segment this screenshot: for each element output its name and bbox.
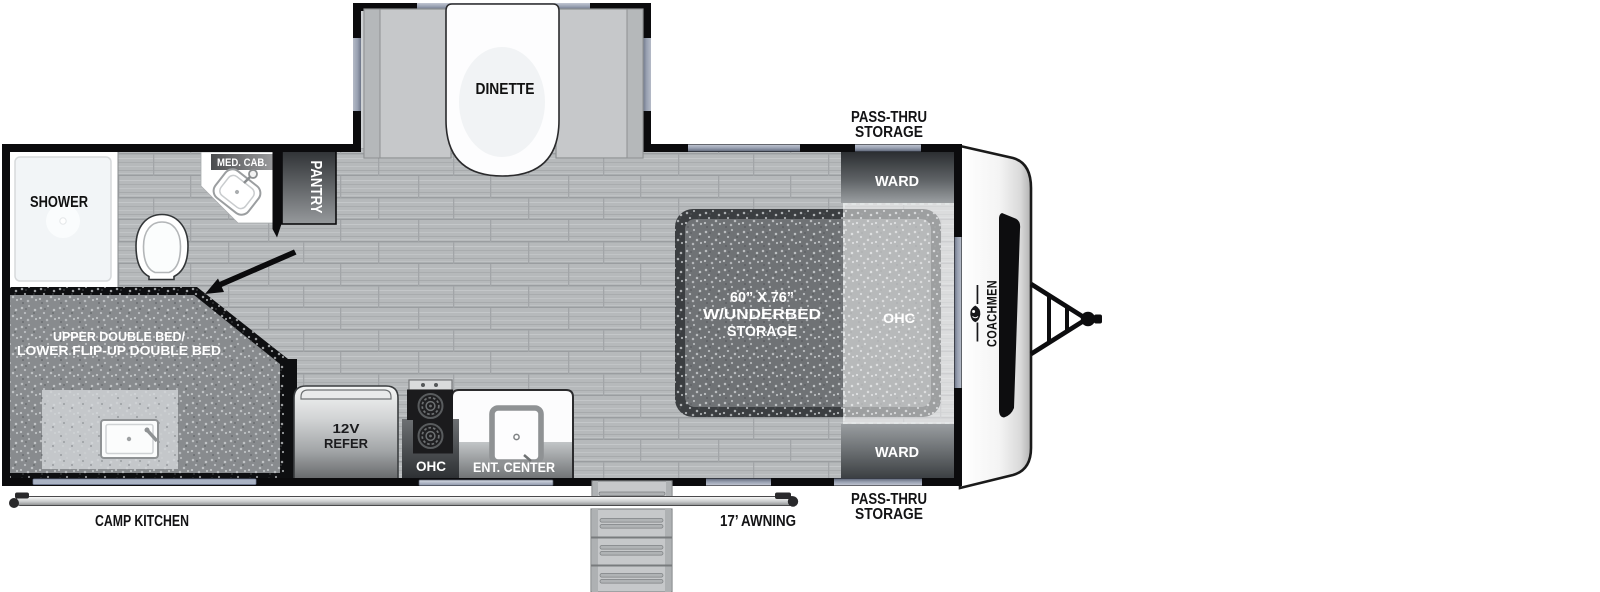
svg-text:OHC: OHC (883, 310, 915, 326)
svg-text:OHC: OHC (416, 459, 446, 474)
svg-text:DINETTE: DINETTE (476, 81, 535, 98)
svg-text:STORAGE: STORAGE (727, 323, 797, 340)
svg-text:PANTRY: PANTRY (307, 161, 324, 214)
svg-text:WARD: WARD (875, 444, 919, 461)
svg-text:STORAGE: STORAGE (855, 506, 923, 523)
svg-text:ENT. CENTER: ENT. CENTER (473, 460, 555, 475)
svg-text:COACHMEN: COACHMEN (984, 280, 1000, 347)
svg-text:REFER: REFER (324, 437, 368, 451)
svg-text:17’ AWNING: 17’ AWNING (720, 513, 796, 530)
svg-text:LOWER FLIP-UP DOUBLE BED: LOWER FLIP-UP DOUBLE BED (17, 343, 221, 358)
svg-text:STORAGE: STORAGE (855, 124, 923, 141)
svg-text:12V: 12V (333, 422, 361, 436)
svg-text:60” X 76”: 60” X 76” (730, 289, 794, 306)
svg-text:WARD: WARD (875, 173, 919, 190)
svg-text:SHOWER: SHOWER (30, 194, 88, 211)
svg-text:UPPER DOUBLE BED/: UPPER DOUBLE BED/ (53, 329, 185, 344)
svg-text:MED. CAB.: MED. CAB. (217, 157, 267, 169)
svg-text:CAMP KITCHEN: CAMP KITCHEN (95, 513, 189, 530)
svg-text:W/UNDERBED: W/UNDERBED (703, 306, 821, 323)
